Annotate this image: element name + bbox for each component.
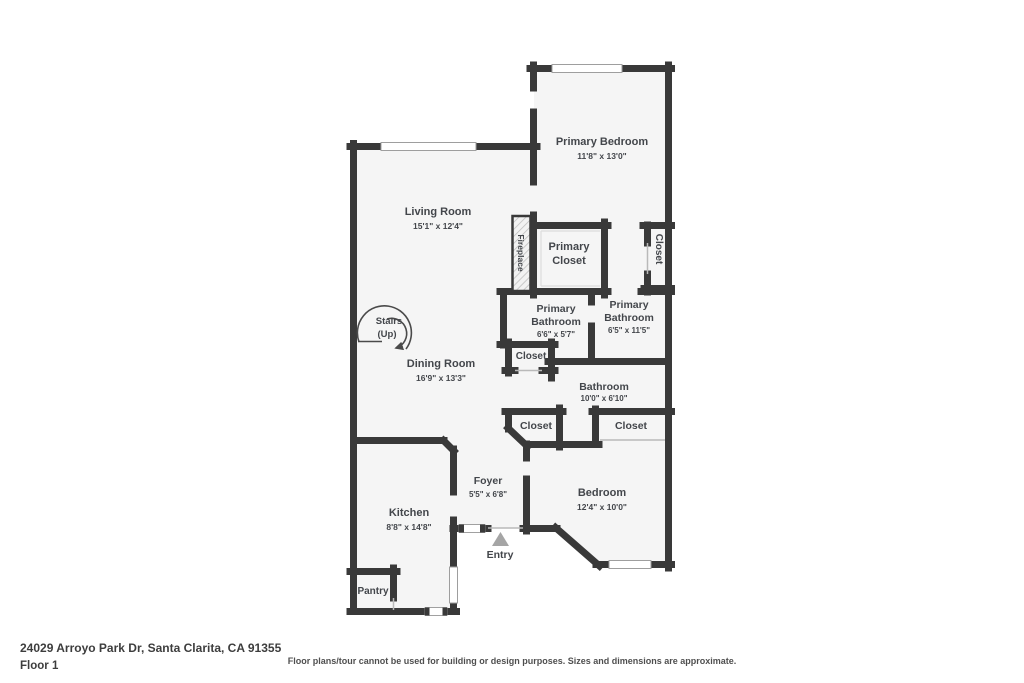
pantry-label: Pantry bbox=[357, 586, 389, 597]
primary-bathroom-large-dims: 6'5" x 11'5" bbox=[608, 326, 650, 335]
primary-bedroom-dims: 11'8" x 13'0" bbox=[577, 151, 626, 161]
entry-arrow-icon bbox=[492, 532, 509, 546]
bedroom-label: Bedroom bbox=[578, 487, 627, 499]
bathroom-label: Bathroom bbox=[579, 381, 629, 393]
foyer-label: Foyer bbox=[474, 475, 503, 487]
kitchen-dims: 8'8" x 14'8" bbox=[386, 522, 431, 532]
floor-plan-svg: Fireplace Living Room 15'1" x 12'4" Prim… bbox=[0, 0, 1024, 683]
primary-bathroom-small-label-line1: Primary bbox=[536, 303, 575, 315]
primary-bathroom-small-dims: 6'6" x 5'7" bbox=[537, 330, 575, 339]
floorplan-page: Fireplace Living Room 15'1" x 12'4" Prim… bbox=[0, 0, 1024, 683]
address-text: 24029 Arroyo Park Dr, Santa Clarita, CA … bbox=[20, 641, 281, 655]
dining-room-label: Dining Room bbox=[407, 358, 476, 370]
primary-closet-label-line1: Primary bbox=[549, 241, 591, 253]
living-room-label: Living Room bbox=[405, 206, 472, 218]
kitchen-door-symbol bbox=[425, 608, 447, 616]
entry-label: Entry bbox=[487, 549, 514, 561]
closet-hall-label: Closet bbox=[516, 351, 547, 362]
entry-door-symbol bbox=[459, 525, 485, 533]
kitchen-label: Kitchen bbox=[389, 507, 430, 519]
living-room-dims: 15'1" x 12'4" bbox=[413, 221, 463, 231]
disclaimer-text: Floor plans/tour cannot be used for buil… bbox=[0, 656, 1024, 666]
primary-bathroom-small-label-line2: Bathroom bbox=[531, 316, 581, 328]
dining-room-dims: 16'9" x 13'3" bbox=[416, 373, 466, 383]
window-primary-bedroom bbox=[552, 65, 622, 73]
primary-closet-label-line2: Closet bbox=[552, 255, 586, 267]
bathroom-dims: 10'0" x 6'10" bbox=[581, 394, 628, 403]
closet-bedroom-label: Closet bbox=[615, 420, 648, 432]
primary-bedroom-label: Primary Bedroom bbox=[556, 136, 649, 148]
primary-bathroom-large-label-line2: Bathroom bbox=[604, 312, 654, 324]
bedroom-dims: 12'4" x 10'0" bbox=[577, 502, 627, 512]
window-living-room bbox=[381, 143, 476, 151]
window-bedroom bbox=[609, 561, 651, 569]
stairs-label-line1: Stairs bbox=[376, 316, 402, 327]
window-kitchen bbox=[450, 567, 458, 603]
stairs-label-line2: (Up) bbox=[378, 329, 397, 340]
primary-bathroom-large-label-line1: Primary bbox=[609, 299, 648, 311]
closet-foyer-label: Closet bbox=[520, 420, 553, 432]
fireplace-label: Fireplace bbox=[516, 234, 526, 272]
foyer-dims: 5'5" x 6'8" bbox=[469, 490, 507, 499]
closet-upper-right-label: Closet bbox=[653, 234, 664, 265]
